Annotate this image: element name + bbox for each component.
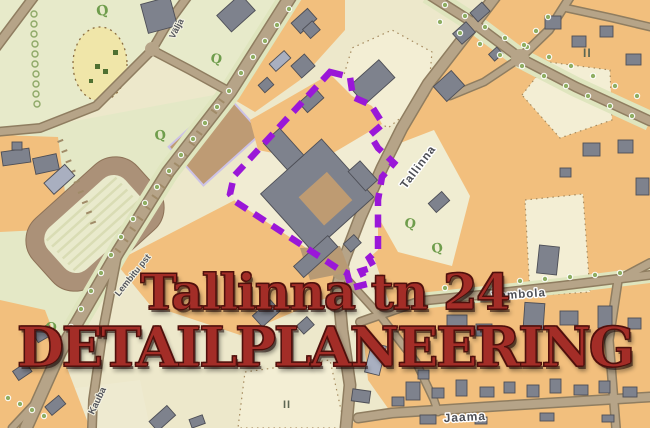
plan-title-line2: DETAILPLANEERING: [0, 320, 650, 374]
tree-icon: [154, 184, 159, 189]
tree-icon: [607, 103, 612, 108]
tree-icon: [130, 216, 135, 221]
building: [392, 397, 404, 406]
parcel-label: II: [583, 46, 592, 60]
tree-icon: [629, 113, 634, 118]
tree-icon: [214, 104, 219, 109]
tree-icon: [250, 54, 255, 59]
building: [540, 413, 554, 421]
tree-icon: [262, 38, 267, 43]
building: [600, 26, 613, 37]
tree-icon: [274, 22, 279, 27]
tree-icon: [166, 168, 171, 173]
tree-icon: [5, 395, 10, 400]
building: [12, 142, 22, 150]
tree-icon: [286, 6, 291, 11]
tree-icon: [29, 407, 34, 412]
tree-icon: [226, 88, 231, 93]
deciduous-tree-icon: Q: [95, 2, 109, 20]
tree-icon: [585, 93, 590, 98]
building: [420, 415, 436, 424]
building: [626, 54, 641, 65]
tree-icon: [142, 200, 147, 205]
tree-icon: [497, 52, 502, 57]
tree-icon: [545, 14, 550, 19]
building: [602, 415, 614, 422]
building: [550, 379, 561, 393]
building: [527, 385, 539, 397]
building: [480, 387, 494, 397]
tree-icon: [462, 13, 467, 18]
building: [618, 140, 633, 153]
deciduous-tree-icon: Q: [154, 128, 167, 144]
tree-icon: [533, 28, 538, 33]
tree-icon: [612, 83, 617, 88]
tree-icon: [568, 63, 573, 68]
tree-icon: [190, 136, 195, 141]
tree-icon: [238, 70, 243, 75]
tree-icon: [563, 83, 568, 88]
building: [583, 143, 600, 156]
tree-icon: [519, 63, 524, 68]
tree-icon: [118, 234, 123, 239]
building: [599, 381, 610, 393]
building: [351, 389, 370, 403]
building: [560, 168, 571, 177]
tree-icon: [95, 64, 100, 69]
building: [574, 385, 588, 395]
building: [623, 387, 637, 397]
building: [504, 382, 515, 393]
building: [636, 178, 649, 195]
tree-icon: [590, 73, 595, 78]
tree-icon: [521, 42, 526, 47]
plan-title-line1: Tallinna tn 24: [0, 268, 650, 317]
planning-map-screenshot: Q Q Q Q Q Q II II Välja Tallinna Lembitu…: [0, 0, 650, 428]
junction: [145, 42, 159, 56]
building: [432, 388, 444, 398]
tree-icon: [634, 93, 639, 98]
tree-icon: [457, 30, 462, 35]
building: [406, 382, 420, 400]
deciduous-tree-icon: Q: [403, 216, 416, 232]
tree-icon: [41, 413, 46, 418]
tree-icon: [546, 54, 551, 59]
tree-icon: [437, 19, 442, 24]
tree-icon: [482, 24, 487, 29]
tree-icon: [202, 120, 207, 125]
tree-icon: [502, 35, 507, 40]
tree-icon: [108, 252, 113, 257]
tree-icon: [442, 2, 447, 7]
tree-icon: [178, 152, 183, 157]
deciduous-tree-icon: Q: [431, 241, 444, 257]
building: [456, 380, 467, 396]
tree-icon: [541, 73, 546, 78]
street-label-jaama: Jaama: [443, 409, 486, 425]
parcel-label: II: [283, 399, 291, 411]
tree-icon: [477, 41, 482, 46]
tree-icon: [113, 50, 118, 55]
tree-icon: [89, 79, 93, 83]
tree-icon: [17, 401, 22, 406]
tree-icon: [103, 69, 108, 74]
